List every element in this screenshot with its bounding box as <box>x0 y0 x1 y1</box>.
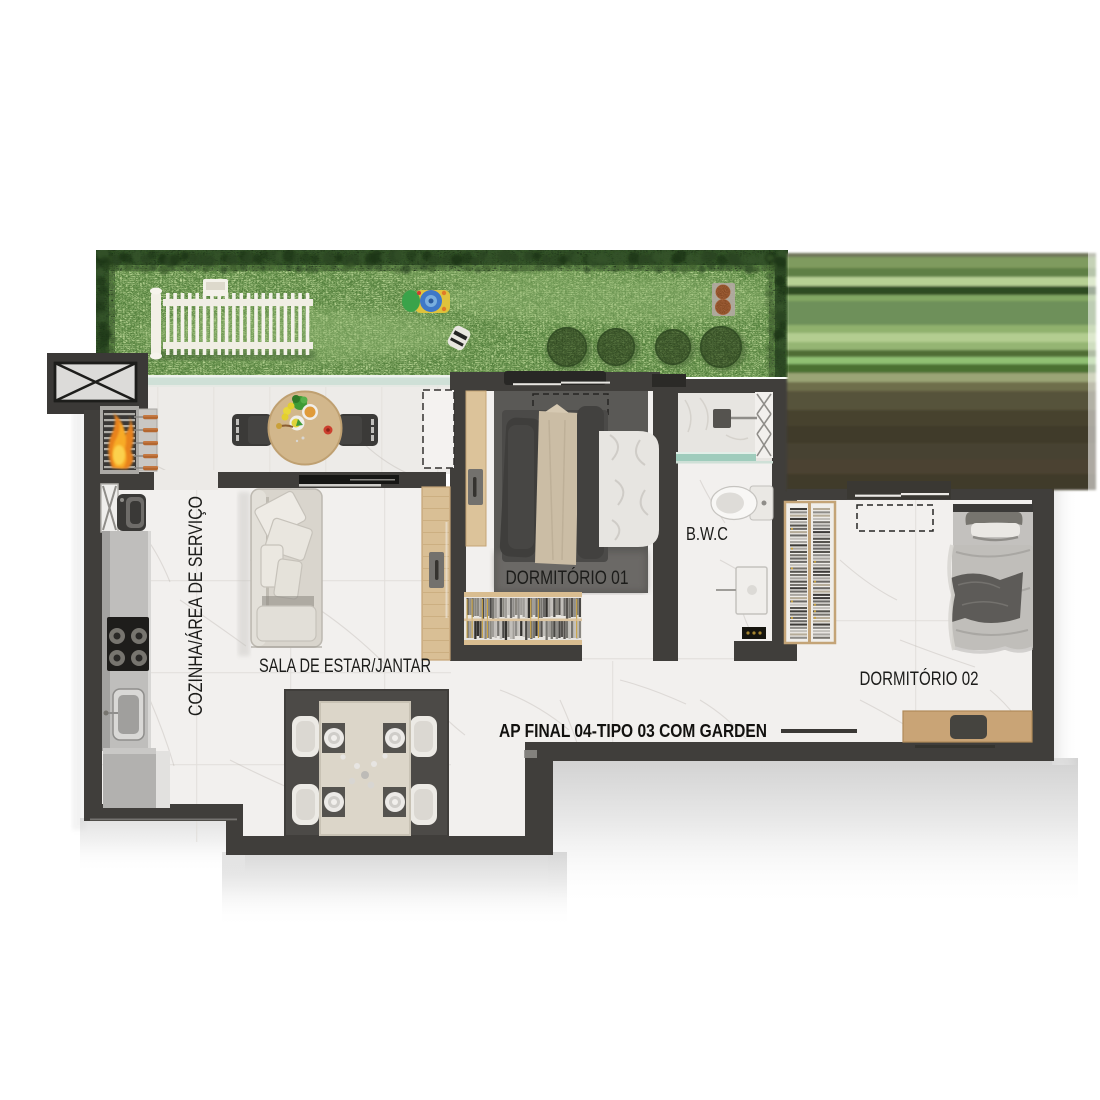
svg-text:SALA DE ESTAR/JANTAR: SALA DE ESTAR/JANTAR <box>259 656 431 677</box>
svg-text:B.W.C: B.W.C <box>686 524 728 544</box>
svg-text:COZINHA/ÁREA DE SERVIÇO: COZINHA/ÁREA DE SERVIÇO <box>184 496 207 716</box>
svg-text:DORMITÓRIO 02: DORMITÓRIO 02 <box>860 668 979 690</box>
svg-text:AP FINAL 04-TIPO 03 COM GARDEN: AP FINAL 04-TIPO 03 COM GARDEN <box>499 720 767 741</box>
svg-text:DORMITÓRIO 01: DORMITÓRIO 01 <box>506 567 629 589</box>
